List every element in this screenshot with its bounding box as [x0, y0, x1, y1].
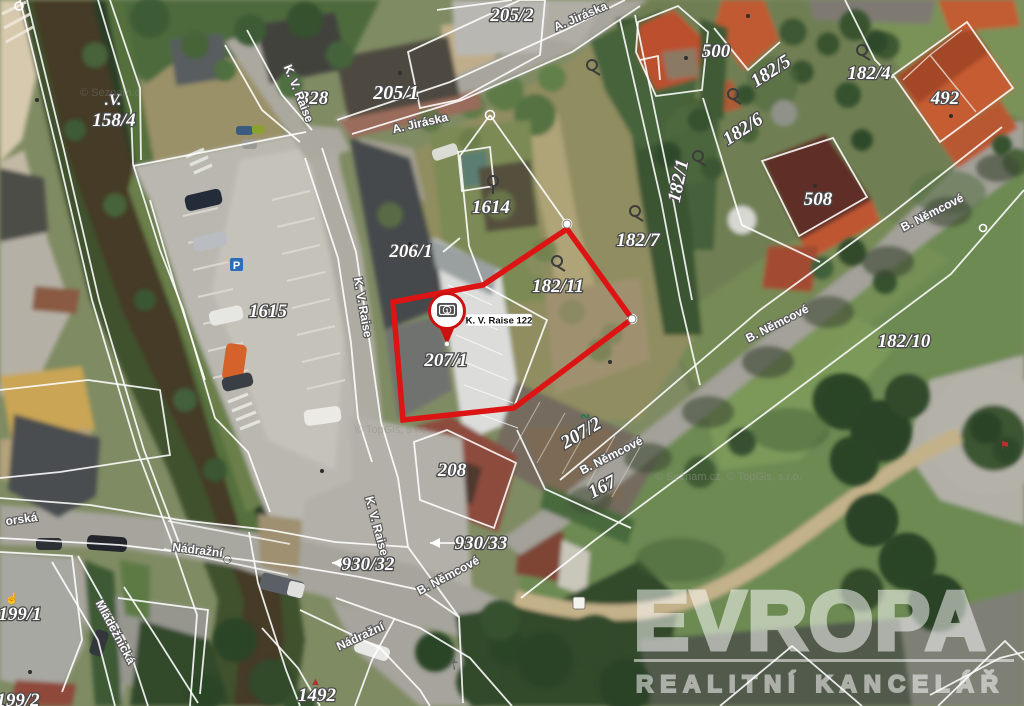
svg-text:EVROPA: EVROPA: [634, 574, 987, 667]
svg-text:930/32: 930/32: [342, 554, 395, 575]
svg-text:199/2: 199/2: [0, 690, 40, 706]
svg-text:⚆: ⚆: [222, 554, 233, 567]
svg-text:182/7: 182/7: [616, 230, 661, 251]
svg-text:1614: 1614: [472, 197, 510, 218]
svg-text:© Seznam.cz: © Seznam.cz: [80, 87, 146, 99]
svg-text:1492: 1492: [298, 685, 337, 706]
svg-text:158/4: 158/4: [92, 110, 135, 131]
svg-text:205/1: 205/1: [372, 82, 419, 104]
svg-text:182/10: 182/10: [878, 331, 931, 352]
svg-text:∾: ∾: [580, 409, 590, 423]
svg-text:492: 492: [930, 88, 960, 109]
svg-text:▲: ▲: [310, 676, 321, 688]
svg-text:REALITNÍ KANCELÁŘ: REALITNÍ KANCELÁŘ: [636, 670, 1005, 698]
svg-text:1615: 1615: [249, 301, 288, 322]
svg-text:⚑: ⚑: [1000, 440, 1010, 452]
svg-text:199/1: 199/1: [0, 604, 42, 625]
svg-text:500: 500: [702, 41, 731, 62]
svg-text:© Seznam.cz, © TopGis, s.r.o.: © Seznam.cz, © TopGis, s.r.o.: [655, 471, 802, 483]
svg-text:182/11: 182/11: [532, 276, 584, 297]
svg-text:207/1: 207/1: [423, 350, 467, 371]
svg-text:1: 1: [445, 308, 449, 315]
svg-text:206/1: 206/1: [388, 241, 432, 262]
svg-text:205/2: 205/2: [489, 5, 534, 26]
svg-text:930/33: 930/33: [455, 533, 508, 554]
svg-text:182/4: 182/4: [847, 63, 890, 84]
svg-text:†: †: [451, 656, 458, 671]
svg-text:508: 508: [804, 189, 833, 210]
svg-text:☝: ☝: [5, 591, 19, 605]
svg-text:K. V. Raise 122: K. V. Raise 122: [466, 316, 533, 327]
svg-text:© TopGis, s.r.o.: © TopGis, s.r.o.: [355, 424, 430, 436]
svg-text:208: 208: [437, 460, 467, 481]
svg-text:P: P: [233, 260, 240, 272]
